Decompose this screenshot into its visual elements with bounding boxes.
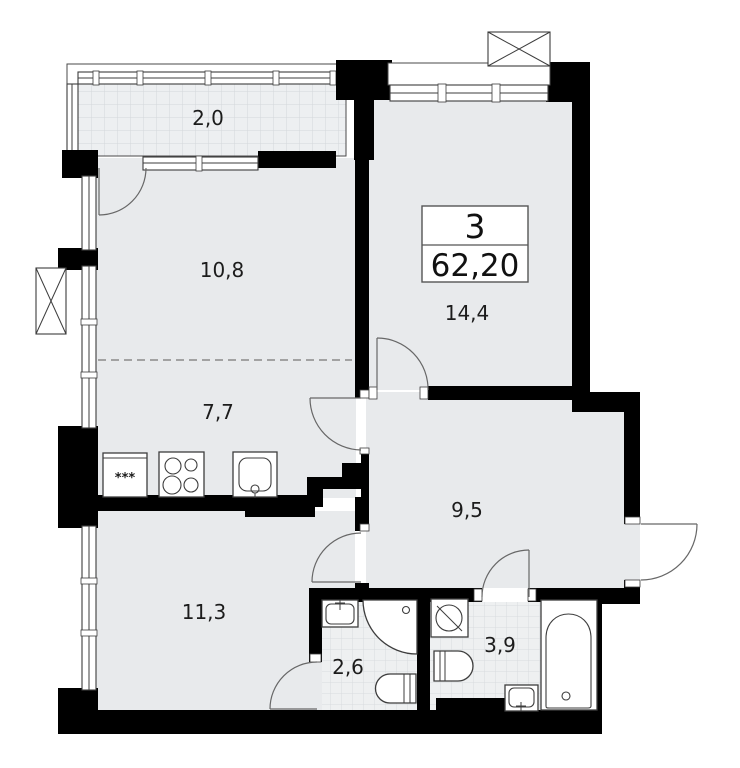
entrance-door: [641, 524, 697, 580]
floor-plan-canvas: ***: [0, 0, 740, 768]
kitchen-sink-icon: [233, 452, 277, 498]
total-area: 62,20: [431, 248, 520, 284]
info-box: 3 62,20: [422, 206, 528, 284]
floor-plan: ***: [0, 0, 740, 768]
fridge-symbol: ***: [115, 471, 136, 486]
wc-sink-icon: [322, 600, 358, 627]
bathroom-sink-icon: [505, 685, 538, 711]
shaft-x-box-left: [36, 268, 66, 334]
toilet-icon-wc: [376, 674, 417, 703]
room-label-bedroom-second: 11,3: [182, 600, 227, 624]
washing-machine-icon: [431, 599, 468, 637]
hallway-floor: [366, 392, 640, 588]
living-kitchen-floor: [96, 158, 356, 498]
room-label-kitchen: 7,7: [202, 400, 234, 424]
window-left-lower: [81, 526, 97, 690]
room-label-balcony: 2,0: [192, 106, 224, 130]
rooms-count: 3: [465, 207, 486, 246]
window-bedroom-main: [388, 63, 550, 102]
room-label-hallway: 9,5: [451, 498, 483, 522]
room-label-shower-room: 2,6: [332, 655, 364, 679]
room-label-living-room: 10,8: [200, 258, 245, 282]
window-left-main: [81, 266, 97, 428]
toilet-icon-bathroom: [434, 651, 473, 681]
fridge-icon: ***: [103, 453, 147, 497]
window-left-upper: [82, 176, 96, 250]
kitchen-fixtures: ***: [103, 452, 277, 498]
stove-icon: [159, 452, 204, 497]
room-label-bathroom: 3,9: [484, 633, 516, 657]
window-living-to-balcony: [143, 156, 258, 171]
shaft-x-box-top: [488, 32, 550, 66]
bathtub-icon: [541, 600, 597, 710]
room-label-bedroom-main: 14,4: [445, 301, 490, 325]
